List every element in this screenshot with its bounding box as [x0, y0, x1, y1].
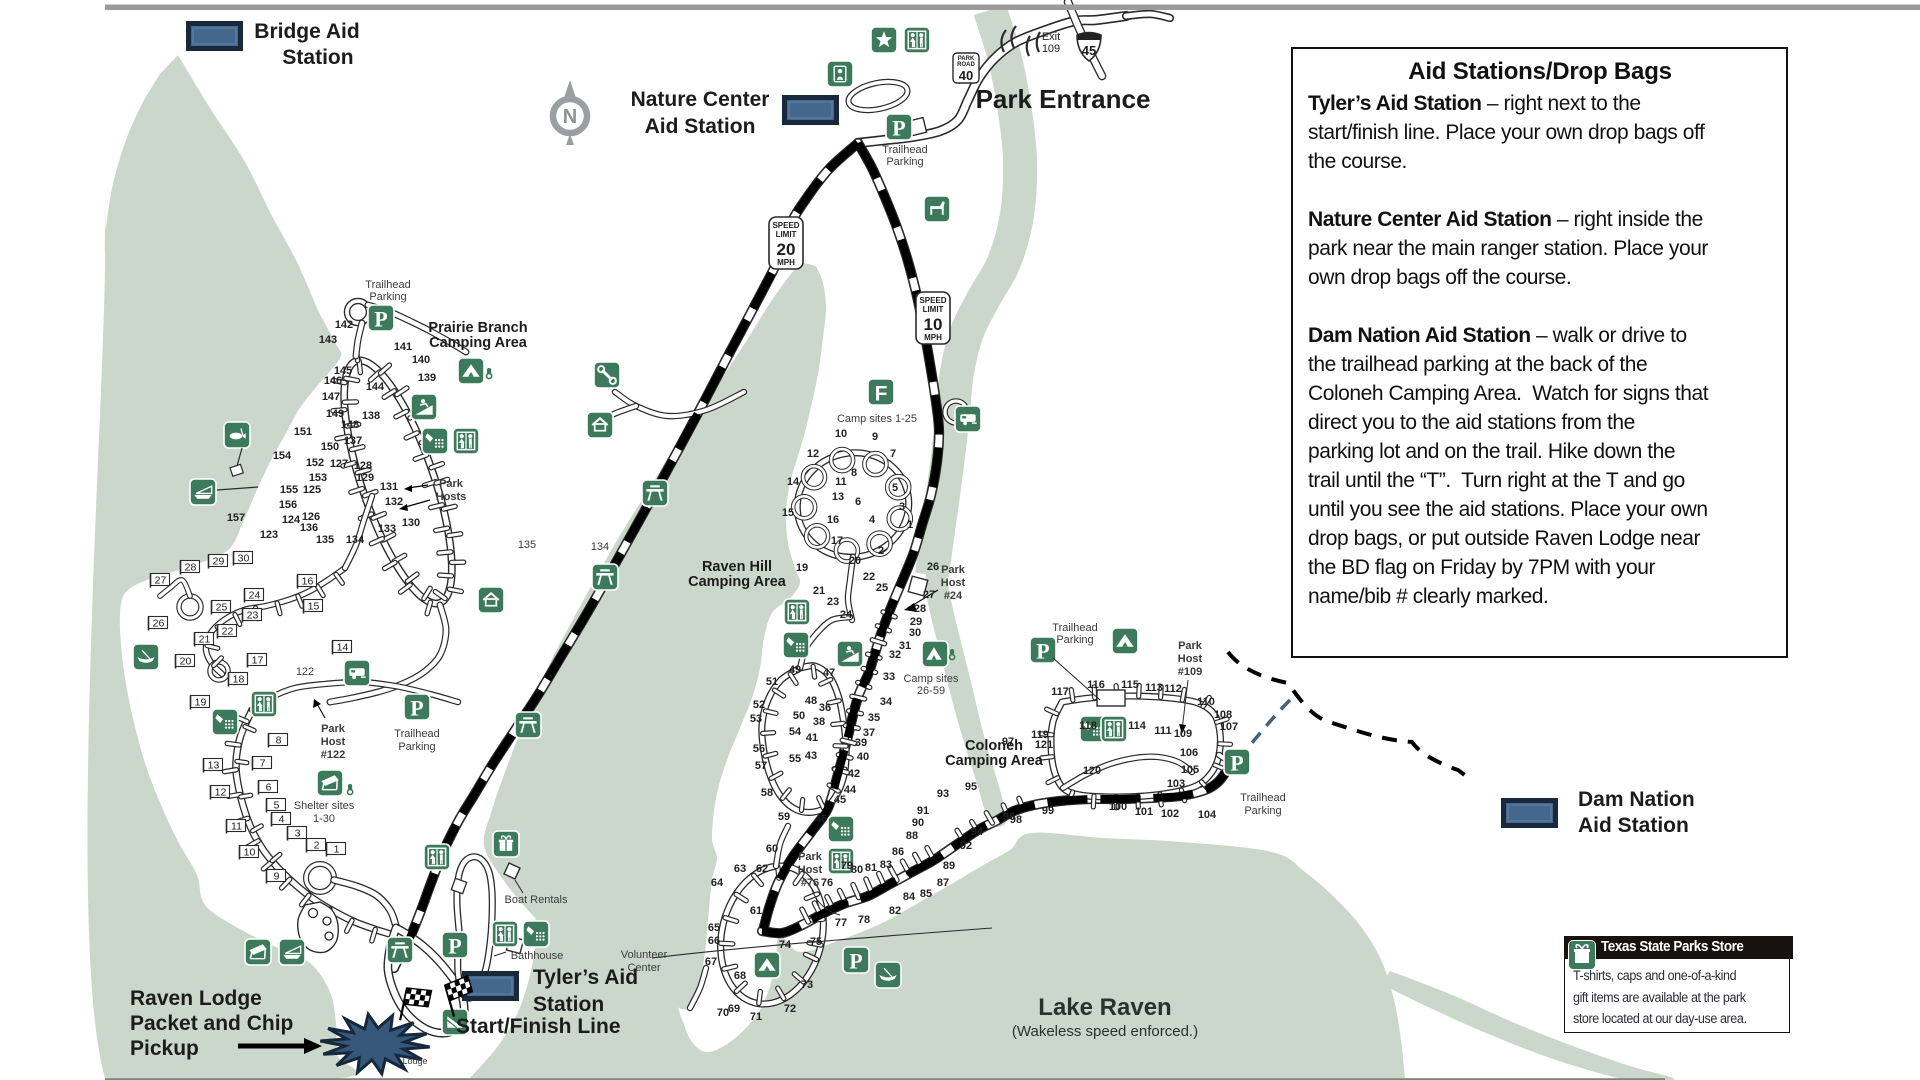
svg-text:95: 95	[965, 781, 977, 793]
svg-text:78: 78	[858, 914, 870, 926]
svg-text:89: 89	[943, 860, 955, 872]
svg-text:49: 49	[789, 664, 801, 676]
svg-text:3: 3	[295, 828, 301, 840]
svg-text:Center: Center	[627, 962, 660, 974]
svg-text:#76: #76	[801, 877, 819, 889]
svg-text:87: 87	[937, 877, 949, 889]
svg-text:8: 8	[851, 467, 857, 479]
svg-text:54: 54	[789, 726, 802, 738]
svg-text:83: 83	[880, 859, 892, 871]
svg-text:13: 13	[832, 491, 844, 503]
svg-text:33: 33	[883, 671, 895, 683]
svg-text:Start/Finish Line: Start/Finish Line	[456, 1015, 621, 1038]
svg-text:104: 104	[1198, 809, 1217, 821]
svg-text:74: 74	[779, 939, 792, 951]
svg-text:43: 43	[805, 750, 817, 762]
svg-text:75: 75	[810, 936, 822, 948]
svg-text:22: 22	[222, 626, 234, 638]
svg-text:2: 2	[878, 545, 884, 557]
svg-text:30: 30	[238, 553, 250, 565]
svg-text:51: 51	[766, 676, 778, 688]
svg-text:9: 9	[274, 871, 280, 883]
svg-text:45: 45	[1082, 43, 1096, 58]
svg-text:153: 153	[309, 472, 327, 484]
svg-text:91: 91	[917, 805, 929, 817]
svg-text:52: 52	[753, 699, 765, 711]
svg-text:7: 7	[260, 758, 266, 770]
svg-text:24: 24	[840, 609, 853, 621]
svg-text:P: P	[374, 306, 387, 331]
svg-text:110: 110	[1197, 696, 1215, 708]
svg-text:134: 134	[591, 541, 609, 553]
svg-text:65: 65	[708, 922, 720, 934]
svg-text:4: 4	[869, 514, 876, 526]
svg-text:139: 139	[418, 372, 436, 384]
svg-text:Trailhead: Trailhead	[365, 279, 410, 291]
svg-text:#24: #24	[944, 590, 963, 602]
svg-text:138: 138	[362, 410, 380, 422]
svg-text:109: 109	[1174, 728, 1192, 740]
svg-text:94: 94	[971, 826, 984, 838]
svg-text:3: 3	[899, 501, 905, 513]
svg-text:P: P	[892, 115, 905, 140]
svg-text:118: 118	[1079, 720, 1097, 732]
svg-text:32: 32	[889, 649, 901, 661]
svg-text:P: P	[849, 948, 862, 973]
svg-text:19: 19	[796, 562, 808, 574]
svg-text:40: 40	[857, 751, 869, 763]
svg-text:Parking: Parking	[398, 741, 435, 753]
svg-text:P: P	[1230, 750, 1243, 775]
svg-text:117: 117	[1051, 686, 1069, 698]
svg-text:1: 1	[907, 519, 913, 531]
svg-text:64: 64	[711, 877, 724, 889]
svg-text:40: 40	[959, 68, 973, 83]
svg-text:Camp sites 1-25: Camp sites 1-25	[837, 413, 917, 425]
svg-text:#109: #109	[1178, 666, 1202, 678]
svg-text:7: 7	[890, 448, 896, 460]
svg-text:Parking: Parking	[1056, 634, 1093, 646]
svg-text:19: 19	[195, 697, 207, 709]
svg-text:68: 68	[734, 970, 746, 982]
svg-text:Pickup: Pickup	[130, 1037, 199, 1060]
svg-text:108: 108	[1214, 709, 1232, 721]
svg-text:152: 152	[306, 457, 324, 469]
svg-text:Park Entrance: Park Entrance	[976, 84, 1151, 114]
svg-text:125: 125	[303, 484, 321, 496]
svg-text:113: 113	[1145, 682, 1163, 694]
svg-text:55: 55	[789, 753, 801, 765]
svg-text:148: 148	[341, 419, 359, 431]
svg-text:114: 114	[1128, 720, 1147, 732]
svg-text:11: 11	[835, 476, 847, 488]
svg-text:101: 101	[1135, 806, 1153, 818]
svg-text:17: 17	[252, 655, 264, 667]
svg-text:1: 1	[334, 844, 340, 856]
svg-text:136: 136	[300, 522, 318, 534]
svg-text:14: 14	[337, 642, 349, 654]
svg-text:127: 127	[330, 458, 348, 470]
svg-text:20: 20	[180, 656, 192, 668]
svg-text:20: 20	[777, 240, 796, 259]
svg-text:Hosts: Hosts	[436, 491, 467, 503]
svg-text:12: 12	[807, 448, 819, 460]
svg-text:Trailhead: Trailhead	[1052, 622, 1097, 634]
svg-text:Parking: Parking	[369, 291, 406, 303]
svg-text:70: 70	[717, 1007, 729, 1019]
svg-text:Station: Station	[533, 993, 604, 1016]
svg-text:#122: #122	[321, 749, 345, 761]
svg-text:73: 73	[801, 979, 813, 991]
svg-text:Bridge Aid: Bridge Aid	[254, 20, 359, 43]
svg-text:Nature Center: Nature Center	[631, 88, 770, 111]
svg-text:102: 102	[1161, 808, 1179, 820]
svg-text:50: 50	[793, 710, 805, 722]
svg-text:66: 66	[708, 935, 720, 947]
svg-text:Station: Station	[282, 46, 353, 69]
svg-text:10: 10	[244, 847, 256, 859]
svg-text:Volunteer: Volunteer	[621, 949, 668, 961]
svg-text:LIMIT: LIMIT	[776, 230, 797, 239]
svg-text:1-30: 1-30	[313, 813, 335, 825]
svg-text:107: 107	[1220, 721, 1238, 733]
svg-text:26: 26	[153, 618, 165, 630]
svg-text:124: 124	[282, 514, 301, 526]
svg-text:35: 35	[868, 712, 880, 724]
svg-text:P: P	[448, 933, 461, 958]
svg-text:130: 130	[402, 517, 420, 529]
svg-text:157: 157	[227, 512, 245, 524]
svg-text:36: 36	[819, 702, 831, 714]
svg-text:SPEED: SPEED	[772, 221, 799, 230]
svg-text:Aid Station: Aid Station	[645, 115, 756, 138]
svg-text:Exit: Exit	[1042, 31, 1060, 43]
svg-text:16: 16	[827, 514, 839, 526]
svg-text:133: 133	[378, 523, 396, 535]
svg-text:26-59: 26-59	[917, 685, 945, 697]
svg-text:13: 13	[208, 760, 220, 772]
svg-text:Bathhouse: Bathhouse	[511, 950, 564, 962]
svg-text:Park: Park	[941, 564, 966, 576]
svg-text:82: 82	[889, 905, 901, 917]
svg-text:15: 15	[308, 601, 320, 613]
svg-text:155: 155	[280, 484, 298, 496]
svg-text:Boat Rentals: Boat Rentals	[505, 894, 568, 906]
svg-text:69: 69	[728, 1003, 740, 1015]
svg-text:77: 77	[835, 917, 847, 929]
svg-text:10: 10	[924, 315, 943, 334]
svg-text:56: 56	[753, 743, 765, 755]
svg-text:85: 85	[920, 888, 932, 900]
svg-text:128: 128	[354, 460, 372, 472]
svg-text:25: 25	[216, 602, 228, 614]
svg-text:154: 154	[273, 450, 292, 462]
svg-text:Park: Park	[798, 851, 823, 863]
svg-text:26: 26	[927, 561, 939, 573]
svg-text:Camp sites: Camp sites	[903, 673, 959, 685]
svg-text:MPH: MPH	[777, 258, 795, 267]
svg-text:24: 24	[249, 590, 261, 602]
svg-text:48: 48	[805, 695, 817, 707]
svg-text:42: 42	[848, 768, 860, 780]
svg-text:132: 132	[385, 496, 403, 508]
svg-text:150: 150	[321, 441, 339, 453]
svg-text:134: 134	[346, 534, 365, 546]
svg-text:122: 122	[296, 666, 314, 678]
svg-text:143: 143	[319, 334, 337, 346]
svg-text:16: 16	[302, 576, 314, 588]
svg-text:17: 17	[831, 535, 843, 547]
svg-text:20: 20	[849, 555, 861, 567]
svg-text:12: 12	[215, 787, 227, 799]
svg-text:115: 115	[1121, 679, 1139, 691]
svg-text:27: 27	[923, 589, 935, 601]
svg-text:45: 45	[834, 794, 846, 806]
svg-text:21: 21	[813, 585, 825, 597]
svg-text:30: 30	[909, 627, 921, 639]
svg-text:120: 120	[1083, 765, 1101, 777]
svg-text:135: 135	[518, 539, 536, 551]
svg-text:N: N	[563, 106, 577, 128]
svg-text:100: 100	[1109, 801, 1127, 813]
svg-text:9: 9	[872, 431, 878, 443]
svg-text:Park: Park	[439, 478, 464, 490]
svg-text:62: 62	[756, 863, 768, 875]
svg-text:F: F	[875, 383, 888, 406]
svg-text:5: 5	[892, 482, 898, 494]
svg-text:29: 29	[213, 556, 225, 568]
svg-text:10: 10	[835, 428, 847, 440]
svg-text:116: 116	[1087, 679, 1105, 691]
svg-text:Trailhead: Trailhead	[1240, 792, 1285, 804]
svg-text:Host: Host	[321, 736, 346, 748]
svg-text:71: 71	[750, 1011, 762, 1023]
svg-text:142: 142	[335, 319, 353, 331]
svg-text:28: 28	[914, 603, 926, 615]
svg-text:Trailhead: Trailhead	[882, 144, 927, 156]
svg-text:Aid Station: Aid Station	[1578, 814, 1689, 837]
svg-text:Camping Area: Camping Area	[429, 335, 528, 351]
svg-text:81: 81	[865, 862, 877, 874]
svg-text:Host: Host	[798, 864, 823, 876]
svg-text:Raven Lodge: Raven Lodge	[130, 987, 262, 1010]
svg-text:Dam Nation: Dam Nation	[1578, 788, 1695, 811]
svg-text:109: 109	[1042, 43, 1060, 55]
svg-text:137: 137	[344, 435, 362, 447]
svg-text:99: 99	[1042, 805, 1054, 817]
svg-text:63: 63	[734, 863, 746, 875]
svg-text:Packet and Chip: Packet and Chip	[130, 1012, 293, 1035]
svg-text:131: 131	[380, 481, 398, 493]
svg-text:53: 53	[750, 713, 762, 725]
svg-text:39: 39	[855, 737, 867, 749]
svg-text:92: 92	[960, 840, 972, 852]
svg-text:SPEED: SPEED	[919, 296, 946, 305]
svg-text:15: 15	[782, 507, 794, 519]
svg-text:34: 34	[880, 696, 893, 708]
svg-text:105: 105	[1181, 764, 1199, 776]
svg-text:Lodge: Lodge	[402, 1056, 427, 1066]
svg-text:Lake Raven: Lake Raven	[1038, 994, 1171, 1021]
svg-text:22: 22	[863, 571, 875, 583]
svg-text:88: 88	[906, 830, 918, 842]
svg-text:23: 23	[247, 610, 259, 622]
svg-text:21: 21	[199, 634, 211, 646]
svg-text:Prairie Branch: Prairie Branch	[428, 320, 527, 336]
svg-text:123: 123	[260, 529, 278, 541]
svg-text:106: 106	[1180, 747, 1198, 759]
svg-text:Camping Area: Camping Area	[945, 753, 1044, 769]
svg-text:47: 47	[823, 667, 835, 679]
svg-text:25: 25	[876, 582, 888, 594]
svg-text:76: 76	[821, 877, 833, 889]
svg-text:38: 38	[813, 716, 825, 728]
svg-text:140: 140	[412, 354, 430, 366]
svg-text:Host: Host	[941, 577, 966, 589]
svg-text:67: 67	[705, 956, 717, 968]
svg-text:14: 14	[787, 476, 800, 488]
svg-text:11: 11	[231, 821, 242, 833]
svg-text:Host: Host	[1178, 653, 1203, 665]
svg-text:P: P	[410, 695, 423, 720]
svg-text:93: 93	[937, 788, 949, 800]
svg-text:103: 103	[1167, 778, 1185, 790]
svg-text:23: 23	[827, 596, 839, 608]
svg-text:41: 41	[806, 732, 818, 744]
svg-text:Tyler’s Aid: Tyler’s Aid	[533, 966, 638, 989]
svg-text:97: 97	[1002, 736, 1014, 748]
svg-text:135: 135	[316, 534, 334, 546]
svg-text:Camping Area: Camping Area	[688, 574, 787, 590]
svg-text:Park: Park	[1178, 640, 1203, 652]
svg-text:5: 5	[274, 800, 280, 812]
svg-text:Raven Hill: Raven Hill	[702, 559, 772, 575]
svg-text:72: 72	[784, 1003, 796, 1015]
svg-text:59: 59	[778, 811, 790, 823]
svg-text:80: 80	[851, 864, 863, 876]
svg-text:6: 6	[855, 496, 861, 508]
svg-text:Coloneh: Coloneh	[965, 738, 1023, 754]
svg-text:129: 129	[356, 472, 374, 484]
svg-text:112: 112	[1164, 683, 1182, 695]
svg-text:Parking: Parking	[1244, 805, 1281, 817]
svg-text:4: 4	[279, 814, 285, 826]
svg-text:141: 141	[394, 341, 412, 353]
svg-text:147: 147	[322, 391, 340, 403]
svg-text:46: 46	[815, 813, 827, 825]
svg-text:Trailhead: Trailhead	[394, 728, 439, 740]
svg-text:84: 84	[903, 891, 916, 903]
svg-text:MPH: MPH	[924, 333, 942, 342]
svg-text:57: 57	[755, 760, 767, 772]
svg-text:28: 28	[185, 562, 197, 574]
svg-text:98: 98	[1010, 814, 1022, 826]
svg-text:86: 86	[892, 846, 904, 858]
svg-text:Shelter sites: Shelter sites	[294, 800, 355, 812]
svg-text:60: 60	[766, 843, 778, 855]
svg-text:(Wakeless speed enforced.): (Wakeless speed enforced.)	[1012, 1023, 1198, 1040]
svg-text:Parking: Parking	[886, 156, 923, 168]
svg-text:LIMIT: LIMIT	[923, 305, 944, 314]
svg-text:2: 2	[314, 840, 320, 852]
svg-text:8: 8	[276, 735, 282, 747]
svg-text:111: 111	[1154, 725, 1171, 737]
svg-text:Park: Park	[321, 723, 346, 735]
svg-text:6: 6	[266, 782, 272, 794]
svg-text:144: 144	[366, 381, 385, 393]
svg-text:146: 146	[324, 375, 342, 387]
svg-text:90: 90	[912, 817, 924, 829]
svg-text:61: 61	[750, 905, 762, 917]
svg-text:121: 121	[1035, 739, 1053, 751]
svg-text:151: 151	[294, 426, 312, 438]
svg-text:58: 58	[761, 787, 773, 799]
svg-text:27: 27	[155, 575, 167, 587]
svg-text:18: 18	[233, 674, 245, 686]
svg-text:156: 156	[279, 499, 297, 511]
svg-text:P: P	[1036, 638, 1049, 663]
